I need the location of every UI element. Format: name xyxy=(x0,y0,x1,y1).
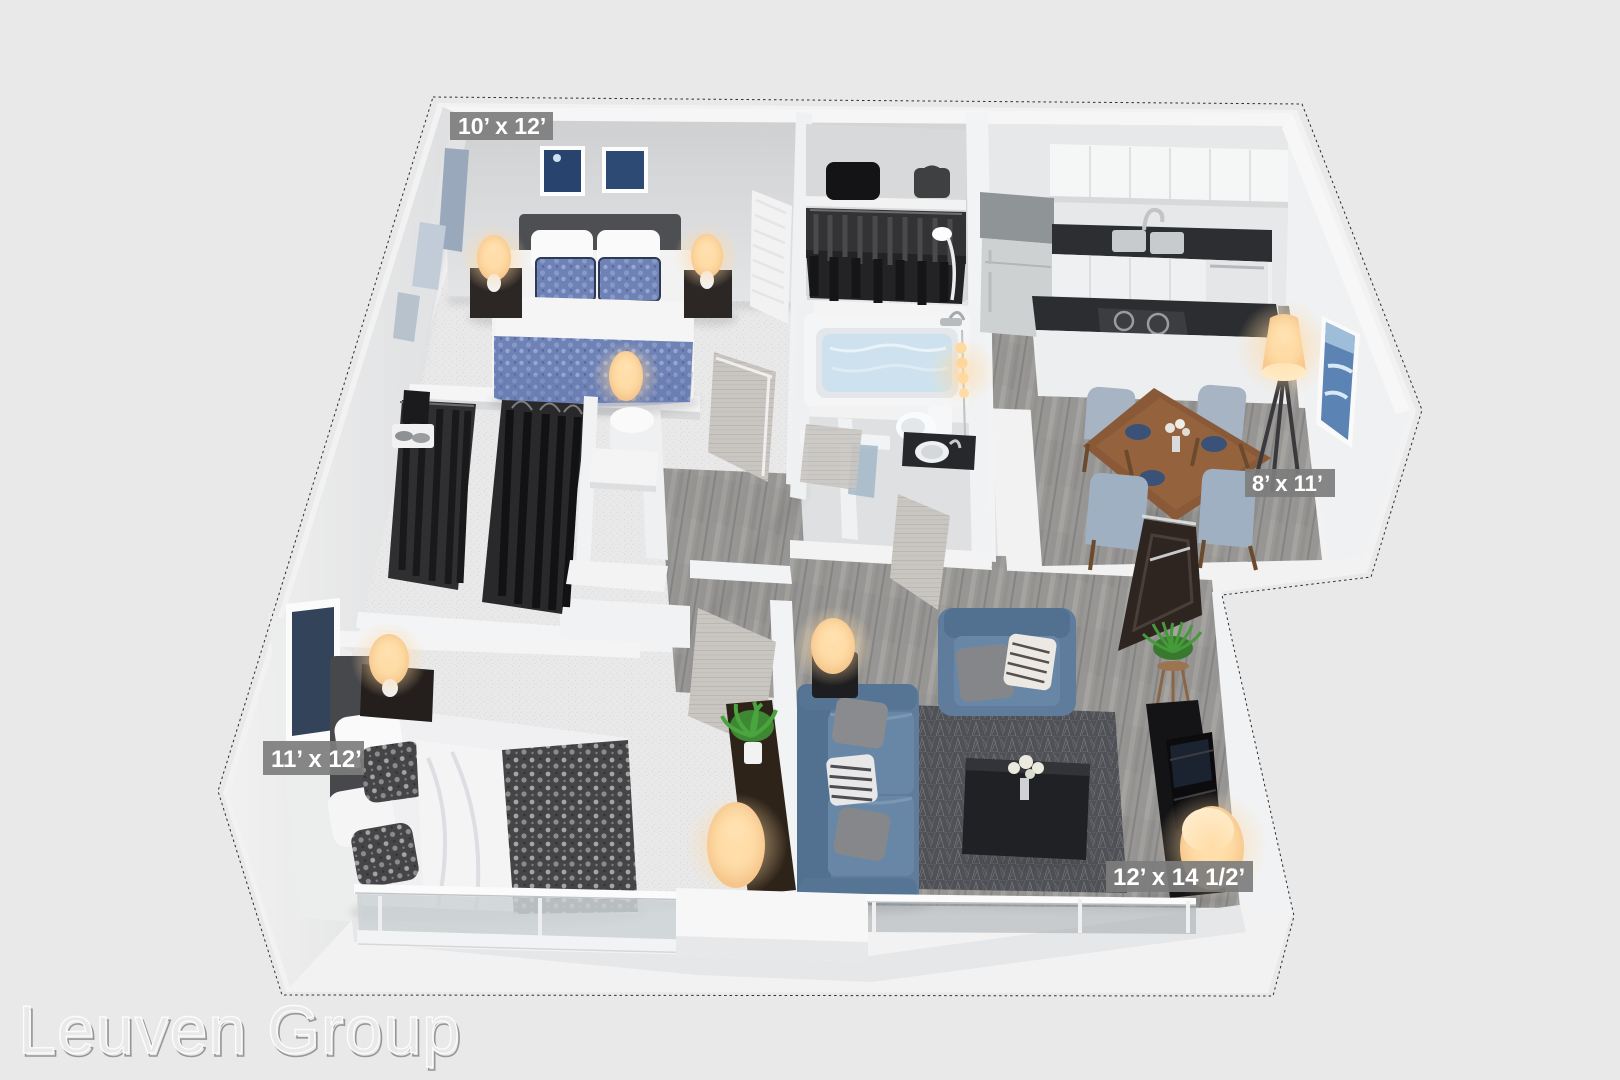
svg-text:8’ x 11’: 8’ x 11’ xyxy=(1252,471,1323,496)
svg-text:12’ x 14 1/2’: 12’ x 14 1/2’ xyxy=(1113,864,1245,891)
svg-text:Leuven Group: Leuven Group xyxy=(18,992,461,1068)
svg-text:11’ x 12’: 11’ x 12’ xyxy=(271,746,362,773)
svg-text:10’ x 12’: 10’ x 12’ xyxy=(458,113,546,139)
